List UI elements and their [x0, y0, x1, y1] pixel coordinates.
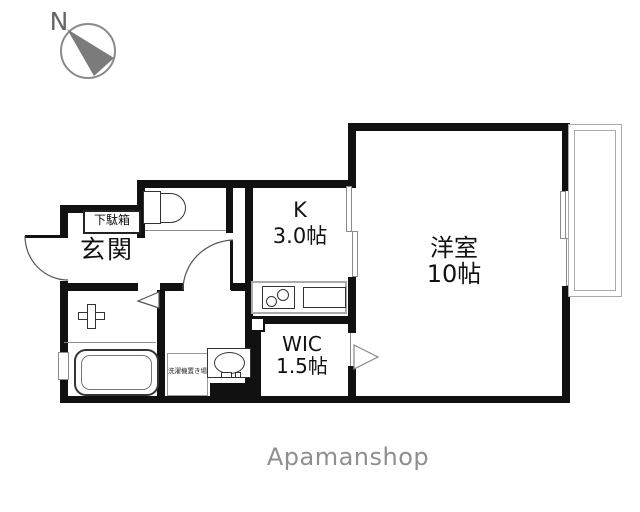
bath-faucet-icon	[87, 304, 96, 329]
wall	[348, 123, 570, 131]
wall	[348, 316, 356, 333]
wic-label: WIC	[256, 333, 348, 356]
wall	[562, 286, 570, 396]
wall	[348, 123, 356, 186]
hall-door-leaf	[230, 240, 233, 290]
wall	[210, 383, 251, 396]
entrance-door-arc	[25, 236, 68, 280]
western-room-label: 洋室	[399, 235, 509, 263]
wall	[60, 205, 68, 238]
closet-door-line	[350, 333, 351, 366]
brand-text: Apamanshop	[218, 444, 478, 472]
toilet-tank	[143, 191, 161, 224]
closet-door-icon	[354, 345, 378, 369]
bathtub-edge-line	[64, 342, 156, 343]
wall	[348, 277, 356, 316]
kitchen-area-label: 3.0帖	[250, 224, 350, 248]
floor-plan-image: 洗濯機置き場 下駄箱 N 玄関 K 3.0帖 洋室 10帖 WIC 1.5帖 A…	[0, 0, 640, 512]
sliding-window-panel	[560, 191, 566, 239]
washing-machine-label: 洗濯機置き場	[167, 368, 208, 375]
toilet-door-line	[145, 230, 226, 231]
balcony-inner-line	[574, 130, 616, 291]
wall	[226, 180, 233, 233]
entrance-label: 玄関	[68, 236, 146, 265]
wall	[60, 283, 138, 291]
compass-north-label: N	[44, 8, 74, 37]
sliding-door-panel	[352, 231, 358, 277]
stove-burner	[277, 289, 289, 301]
kitchen-label: K	[250, 198, 350, 222]
stove-burner	[266, 296, 277, 307]
entrance-door-leaf	[25, 235, 68, 238]
bathroom-window	[58, 352, 69, 380]
wall	[231, 283, 253, 291]
folding-door-icon	[138, 292, 159, 308]
vanity-faucet-icon	[235, 372, 241, 378]
western-room-area-label: 10帖	[399, 261, 509, 289]
vanity-faucet-icon	[221, 372, 232, 378]
wic-area-label: 1.5帖	[256, 355, 348, 378]
wall-pillar	[250, 317, 265, 332]
toilet-bowl	[160, 193, 186, 223]
shoe-cabinet-label: 下駄箱	[83, 214, 141, 228]
bathtub-inner	[81, 355, 152, 390]
kitchen-sink	[303, 287, 346, 308]
wall	[348, 366, 356, 396]
compass-needle-icon	[67, 29, 114, 76]
hall-door-arc	[183, 240, 233, 290]
vanity-basin	[214, 352, 245, 374]
wall	[60, 396, 570, 403]
